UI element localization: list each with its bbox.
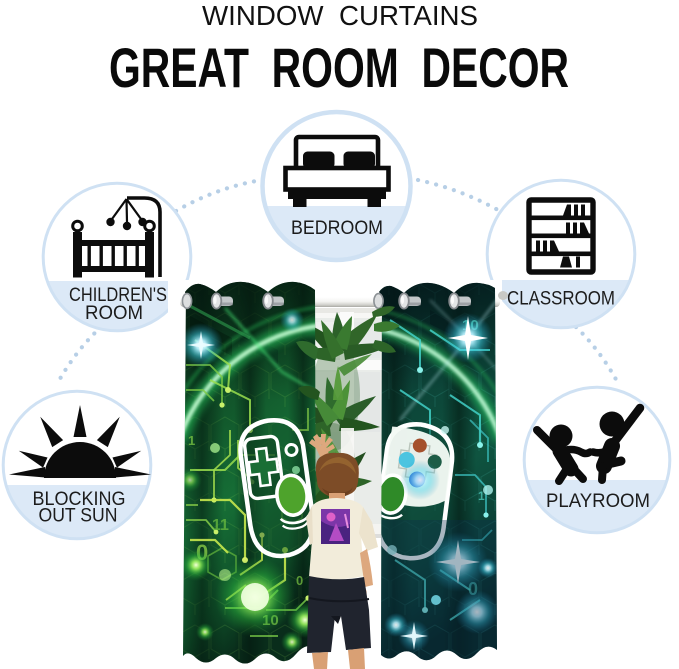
svg-text:11: 11 (212, 517, 229, 534)
svg-text:1: 1 (188, 433, 195, 448)
svg-text:ROOM: ROOM (85, 302, 143, 324)
svg-text:GREAT ROOM DECOR: GREAT ROOM DECOR (109, 36, 569, 99)
svg-text:PLAYROOM: PLAYROOM (546, 490, 650, 512)
svg-text:OUT SUN: OUT SUN (39, 505, 118, 527)
svg-text:CLASSROOM: CLASSROOM (507, 288, 615, 310)
svg-text:0: 0 (296, 573, 303, 588)
svg-text:WINDOW CURTAINS: WINDOW CURTAINS (202, 0, 478, 31)
svg-text:BEDROOM: BEDROOM (291, 217, 383, 239)
